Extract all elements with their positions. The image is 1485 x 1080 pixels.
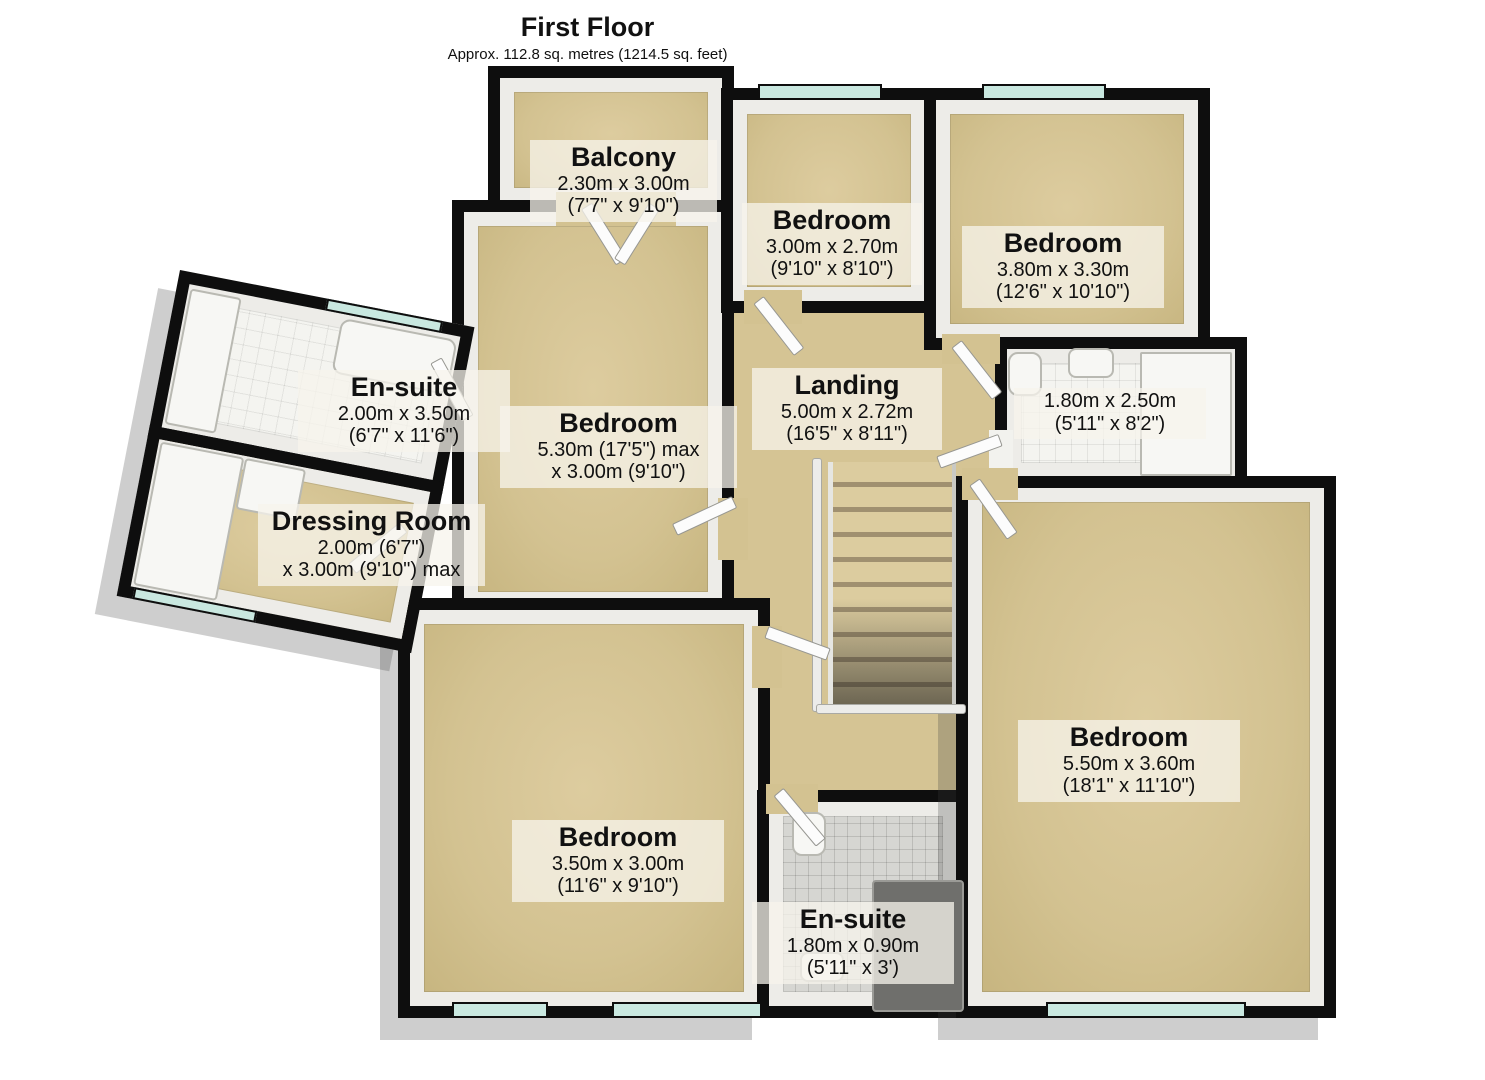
window bbox=[612, 1002, 762, 1018]
bedroom-bottom-right-label: Bedroom 5.50m x 3.60m (18'1" x 11'10") bbox=[1018, 720, 1240, 802]
ensuite-bottom-label: En-suite 1.80m x 0.90m (5'11" x 3') bbox=[752, 902, 954, 984]
room-name: Bedroom bbox=[1024, 722, 1234, 753]
room-dimensions: x 3.00m (9'10") bbox=[506, 461, 731, 484]
room-name: Bedroom bbox=[506, 408, 731, 439]
room-name: Balcony bbox=[536, 142, 711, 173]
room-dimensions: (5'11" x 3') bbox=[758, 957, 948, 980]
room-dimensions: 3.80m x 3.30m bbox=[968, 259, 1158, 282]
window bbox=[758, 84, 882, 100]
room-dimensions: (16'5" x 8'11") bbox=[758, 423, 936, 446]
room-name: En-suite bbox=[304, 372, 504, 403]
window bbox=[452, 1002, 548, 1018]
page-title: First Floor bbox=[0, 12, 1175, 43]
room-dimensions: 2.00m x 3.50m bbox=[304, 403, 504, 426]
room-name: Landing bbox=[758, 370, 936, 401]
room-dimensions: 1.80m x 0.90m bbox=[758, 935, 948, 958]
bedroom-top-right-label: Bedroom 3.80m x 3.30m (12'6" x 10'10") bbox=[962, 226, 1164, 308]
room-dimensions: 3.00m x 2.70m bbox=[748, 236, 916, 259]
room-dimensions: 5.30m (17'5") max bbox=[506, 439, 731, 462]
room-dimensions: 2.30m x 3.00m bbox=[536, 173, 711, 196]
room-bedroom-bottom-left bbox=[398, 598, 770, 1018]
room-name: Bedroom bbox=[968, 228, 1158, 259]
bathroom-label: 1.80m x 2.50m (5'11" x 8'2") bbox=[1014, 388, 1206, 439]
room-dimensions: (12'6" x 10'10") bbox=[968, 281, 1158, 304]
balcony-label: Balcony 2.30m x 3.00m (7'7" x 9'10") bbox=[530, 140, 717, 222]
room-name: En-suite bbox=[758, 904, 948, 935]
stair-handrail bbox=[812, 458, 822, 712]
room-dimensions: (18'1" x 11'10") bbox=[1024, 775, 1234, 798]
room-dimensions: 3.50m x 3.00m bbox=[518, 853, 718, 876]
room-dimensions: x 3.00m (9'10") max bbox=[264, 559, 479, 582]
ensuite-left-label: En-suite 2.00m x 3.50m (6'7" x 11'6") bbox=[298, 370, 510, 452]
room-name: Bedroom bbox=[748, 205, 916, 236]
bedroom-bottom-left-label: Bedroom 3.50m x 3.00m (11'6" x 9'10") bbox=[512, 820, 724, 902]
bedroom-mid-left-label: Bedroom 5.30m (17'5") max x 3.00m (9'10"… bbox=[500, 406, 737, 488]
window bbox=[1046, 1002, 1246, 1018]
room-dimensions: (6'7" x 11'6") bbox=[304, 425, 504, 448]
room-dimensions: (7'7" x 9'10") bbox=[536, 195, 711, 218]
page-subtitle: Approx. 112.8 sq. metres (1214.5 sq. fee… bbox=[0, 46, 1175, 63]
bedroom-top-middle-label: Bedroom 3.00m x 2.70m (9'10" x 8'10") bbox=[742, 203, 922, 285]
floor-plan: First Floor Approx. 112.8 sq. metres (12… bbox=[0, 0, 1485, 1080]
room-dimensions: (5'11" x 8'2") bbox=[1020, 413, 1200, 436]
room-name: Bedroom bbox=[518, 822, 718, 853]
room-dimensions: 2.00m (6'7") bbox=[264, 537, 479, 560]
room-bedroom-top-right bbox=[924, 88, 1210, 350]
window bbox=[982, 84, 1106, 100]
landing-label: Landing 5.00m x 2.72m (16'5" x 8'11") bbox=[752, 368, 942, 450]
room-dimensions: (9'10" x 8'10") bbox=[748, 258, 916, 281]
left-wing bbox=[117, 270, 475, 653]
stair-handrail bbox=[816, 704, 966, 714]
staircase bbox=[828, 462, 956, 710]
sink bbox=[1068, 348, 1114, 378]
room-dimensions: 5.50m x 3.60m bbox=[1024, 753, 1234, 776]
dressing-room-label: Dressing Room 2.00m (6'7") x 3.00m (9'10… bbox=[258, 504, 485, 586]
room-dimensions: (11'6" x 9'10") bbox=[518, 875, 718, 898]
room-name: Dressing Room bbox=[264, 506, 479, 537]
room-dimensions: 1.80m x 2.50m bbox=[1020, 390, 1200, 413]
room-dimensions: 5.00m x 2.72m bbox=[758, 401, 936, 424]
